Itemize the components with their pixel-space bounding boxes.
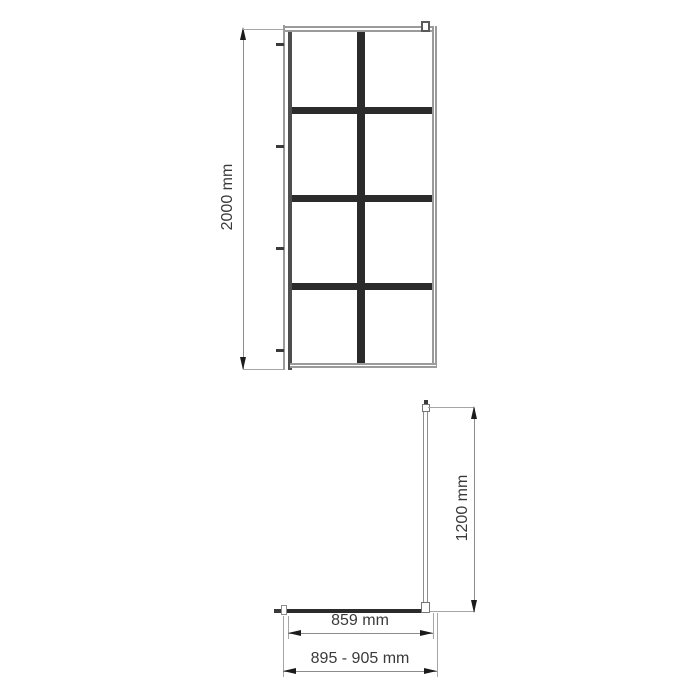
mounting-tick bbox=[276, 43, 284, 46]
glass-bottom-edge bbox=[290, 363, 436, 368]
extension-line-top bbox=[243, 29, 285, 30]
support-bar-top-view bbox=[423, 412, 428, 602]
wall-profile-nub bbox=[274, 609, 281, 613]
depth-dimension-label: 1200 mm bbox=[453, 468, 473, 548]
grid-horizontal-bar bbox=[292, 107, 432, 114]
glass-clamp-bracket bbox=[421, 602, 430, 613]
total-width-dimension-label: 895 - 905 mm bbox=[290, 649, 430, 669]
extension-line-glass-right bbox=[433, 613, 434, 639]
arrowhead-left-icon bbox=[288, 630, 301, 636]
extension-line-bottom bbox=[243, 369, 285, 370]
wall-profile-top-view bbox=[281, 605, 287, 615]
drawing-canvas: 2000 mm 1200 m bbox=[0, 0, 700, 700]
wall-profile-outer-line bbox=[283, 25, 285, 370]
extension-line-total-right bbox=[437, 613, 438, 677]
arrowhead-right-icon bbox=[420, 630, 433, 636]
grid-horizontal-bar bbox=[292, 283, 432, 290]
support-bar-bracket bbox=[421, 21, 430, 32]
extension-line-bar-bottom bbox=[430, 611, 474, 612]
extension-line-bar-top bbox=[428, 407, 474, 408]
plan-view: 1200 mm 859 mm 895 - 905 mm bbox=[0, 395, 700, 700]
depth-dimension-line bbox=[474, 408, 475, 612]
wall-anchor-bracket bbox=[422, 404, 430, 412]
mounting-tick bbox=[276, 247, 284, 250]
arrowhead-down-icon bbox=[471, 600, 477, 613]
glass-width-dimension-line bbox=[288, 633, 433, 634]
arrowhead-up-icon bbox=[471, 406, 477, 419]
grid-horizontal-bar bbox=[292, 195, 432, 202]
front-view: 2000 mm bbox=[0, 0, 700, 395]
glass-right-edge bbox=[432, 26, 437, 368]
total-width-dimension-line bbox=[283, 671, 437, 672]
mounting-tick bbox=[276, 349, 284, 352]
height-dimension-line bbox=[243, 30, 244, 369]
height-dimension-label: 2000 mm bbox=[218, 157, 238, 237]
glass-width-dimension-label: 859 mm bbox=[310, 611, 410, 631]
mounting-tick bbox=[276, 145, 284, 148]
